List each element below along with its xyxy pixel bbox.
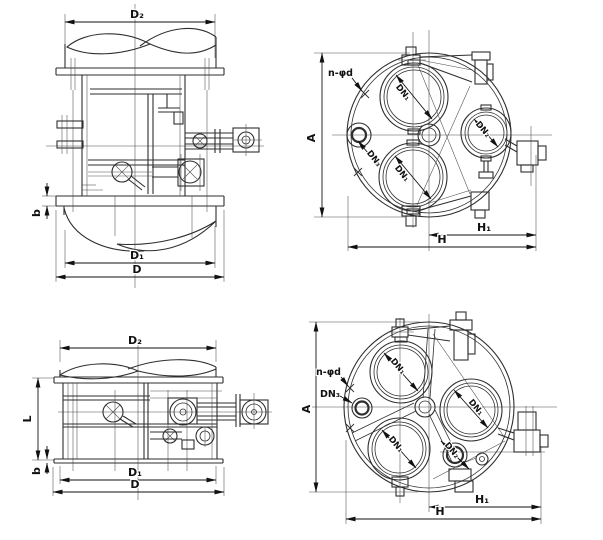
dim-label-d-bottom-side: D bbox=[130, 478, 139, 491]
dim-label-a-top-plan: A bbox=[305, 133, 318, 142]
dim-label-h1-bottom-plan: H₁ bbox=[475, 493, 489, 506]
drawing-canvas: D₂ bbox=[0, 0, 603, 540]
view-top-plan: A n-φd DN₁ DN₁ DN₂ DN₃ H₁ H bbox=[305, 30, 552, 251]
dim-label-h-bottom-plan: H bbox=[435, 505, 444, 518]
dim-label-d-top-side: D bbox=[132, 263, 141, 276]
dim-label-l-bottom-side: L bbox=[21, 415, 34, 422]
nozzle-label-dn1-top-left: DN₁ bbox=[388, 357, 407, 377]
nozzle-label-dn3: DN₃ bbox=[320, 389, 340, 400]
nozzle-dn2 bbox=[461, 105, 511, 178]
label-n-phi-d-bottom-plan: n-φd bbox=[316, 367, 341, 378]
label-n-phi-d-top-plan: n-φd bbox=[328, 68, 353, 79]
dim-label-d1-top-side: D₁ bbox=[130, 249, 144, 262]
dim-label-h-top-plan: H bbox=[437, 233, 446, 246]
nozzle-dn3 bbox=[352, 398, 372, 418]
nozzle-label-dn1-right: DN₁ bbox=[466, 398, 485, 418]
nozzle-label-dn1-bottom-left: DN₁ bbox=[386, 435, 405, 455]
nozzle-label-dn1-lower: DN₁ bbox=[392, 164, 411, 184]
dim-label-d2-top-side: D₂ bbox=[130, 8, 144, 21]
transfer-valve-assembly bbox=[150, 393, 268, 449]
dim-label-a-bottom-plan: A bbox=[300, 404, 313, 413]
dim-label-b-bottom-side: b bbox=[30, 467, 43, 475]
nozzle-label-dn1-upper: DN₁ bbox=[393, 83, 412, 103]
view-bottom-side-elevation: D₂ bbox=[21, 334, 272, 500]
dim-label-h1-top-plan: H₁ bbox=[477, 221, 491, 234]
clamp-hardware bbox=[398, 47, 546, 226]
dim-label-d2-bottom-side: D₂ bbox=[128, 334, 142, 347]
view-bottom-plan: A n-φd DN₃ DN₁ DN₁ DN₁ DN₂ H₁ H bbox=[300, 312, 557, 524]
dim-label-b-top-side: b bbox=[30, 209, 43, 217]
technical-drawing: D₂ bbox=[0, 0, 603, 540]
view-top-side-elevation: D₂ bbox=[30, 4, 264, 288]
